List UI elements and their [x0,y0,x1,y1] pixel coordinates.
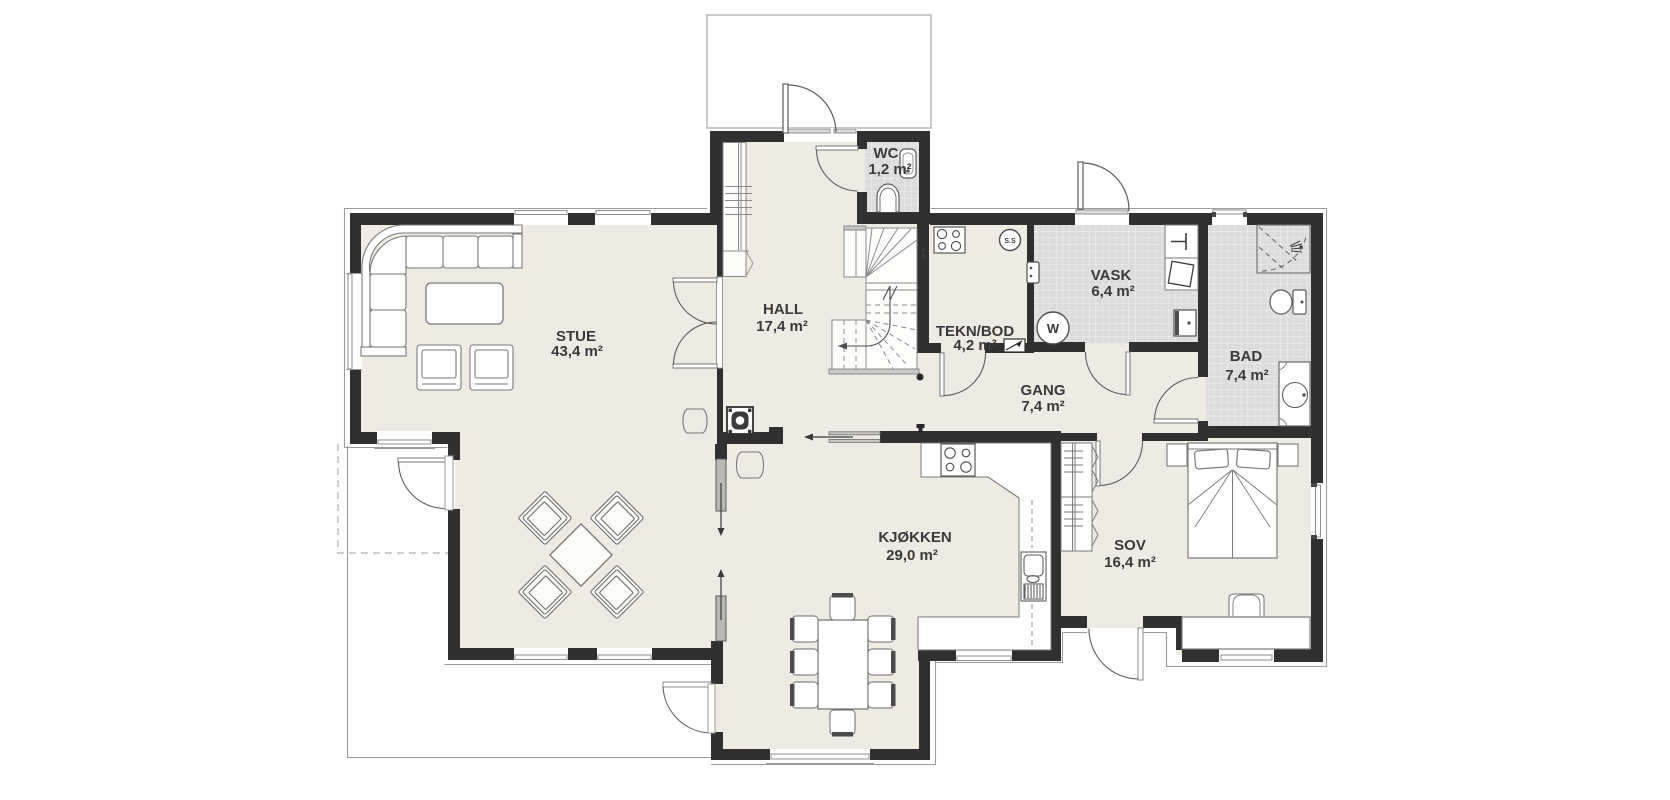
svg-text:W: W [1047,321,1060,336]
svg-text:S.S: S.S [1004,238,1016,245]
svg-text:VASK: VASK [1091,267,1132,284]
svg-text:KJØKKEN: KJØKKEN [878,529,951,546]
svg-text:HALL: HALL [763,301,803,318]
svg-text:WC: WC [874,145,899,162]
svg-text:7,4 m²: 7,4 m² [1021,398,1064,415]
svg-text:GANG: GANG [1021,382,1066,399]
svg-text:1,2 m²: 1,2 m² [868,161,911,178]
svg-text:SOV: SOV [1114,537,1146,554]
svg-text:6,4 m²: 6,4 m² [1091,283,1134,300]
svg-text:16,4 m²: 16,4 m² [1104,554,1156,571]
svg-text:4,2 m²: 4,2 m² [953,337,996,354]
svg-text:43,4 m²: 43,4 m² [551,343,603,360]
svg-text:BAD: BAD [1230,348,1263,365]
svg-text:17,4 m²: 17,4 m² [756,318,808,335]
svg-text:29,0 m²: 29,0 m² [886,547,938,564]
svg-text:7,4 m²: 7,4 m² [1225,367,1268,384]
